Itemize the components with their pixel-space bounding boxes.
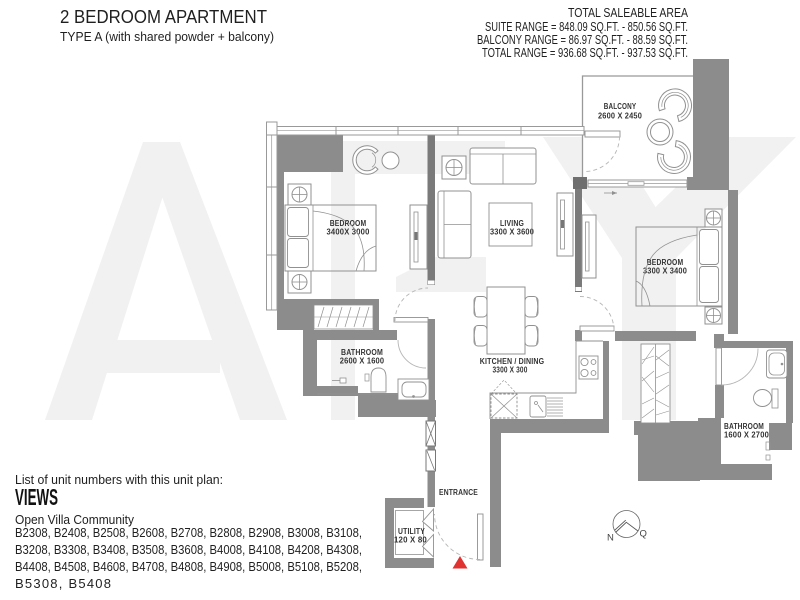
svg-text:B2308, B2408, B2508, B2608, B2: B2308, B2408, B2508, B2608, B2708, B2808… [15, 525, 362, 540]
svg-text:ENTRANCE: ENTRANCE [439, 488, 478, 497]
svg-text:B5308, B5408: B5308, B5408 [15, 576, 111, 591]
svg-text:B3208, B3308, B3408, B3508, B3: B3208, B3308, B3408, B3508, B3608, B4008… [15, 542, 362, 557]
svg-text:2600 X 2450: 2600 X 2450 [598, 112, 642, 121]
svg-text:3400X 3000: 3400X 3000 [327, 228, 370, 237]
svg-text:TYPE A (with shared powder + b: TYPE A (with shared powder + balcony) [60, 29, 274, 44]
svg-text:VIEWS: VIEWS [15, 484, 58, 510]
svg-text:3300 X 3400: 3300 X 3400 [643, 267, 687, 276]
svg-text:SUITE RANGE = 848.09 SQ.FT. -: SUITE RANGE = 848.09 SQ.FT. - 850.56 SQ.… [485, 20, 688, 34]
svg-text:TOTAL RANGE = 936.68 SQ.FT. -: TOTAL RANGE = 936.68 SQ.FT. - 937.53 SQ.… [482, 46, 688, 60]
svg-text:3300 X 3600: 3300 X 3600 [490, 228, 534, 237]
svg-text:3300 X 300: 3300 X 300 [493, 366, 528, 375]
svg-text:1600 X 2700: 1600 X 2700 [724, 431, 769, 440]
svg-text:BALCONY RANGE = 86.97 SQ.FT. -: BALCONY RANGE = 86.97 SQ.FT. - 88.59 SQ.… [477, 33, 688, 47]
svg-text:N: N [607, 533, 614, 544]
svg-text:TOTAL SALEABLE AREA: TOTAL SALEABLE AREA [568, 6, 689, 20]
svg-text:B4408, B4508, B4608, B4708, B4: B4408, B4508, B4608, B4708, B4808, B4908… [15, 559, 362, 574]
svg-text:BALCONY: BALCONY [604, 102, 637, 111]
svg-text:120 X 80: 120 X 80 [394, 536, 427, 545]
svg-text:2 BEDROOM APARTMENT: 2 BEDROOM APARTMENT [60, 7, 267, 27]
svg-text:2600 X 1600: 2600 X 1600 [340, 357, 385, 366]
svg-text:Q: Q [640, 529, 647, 540]
